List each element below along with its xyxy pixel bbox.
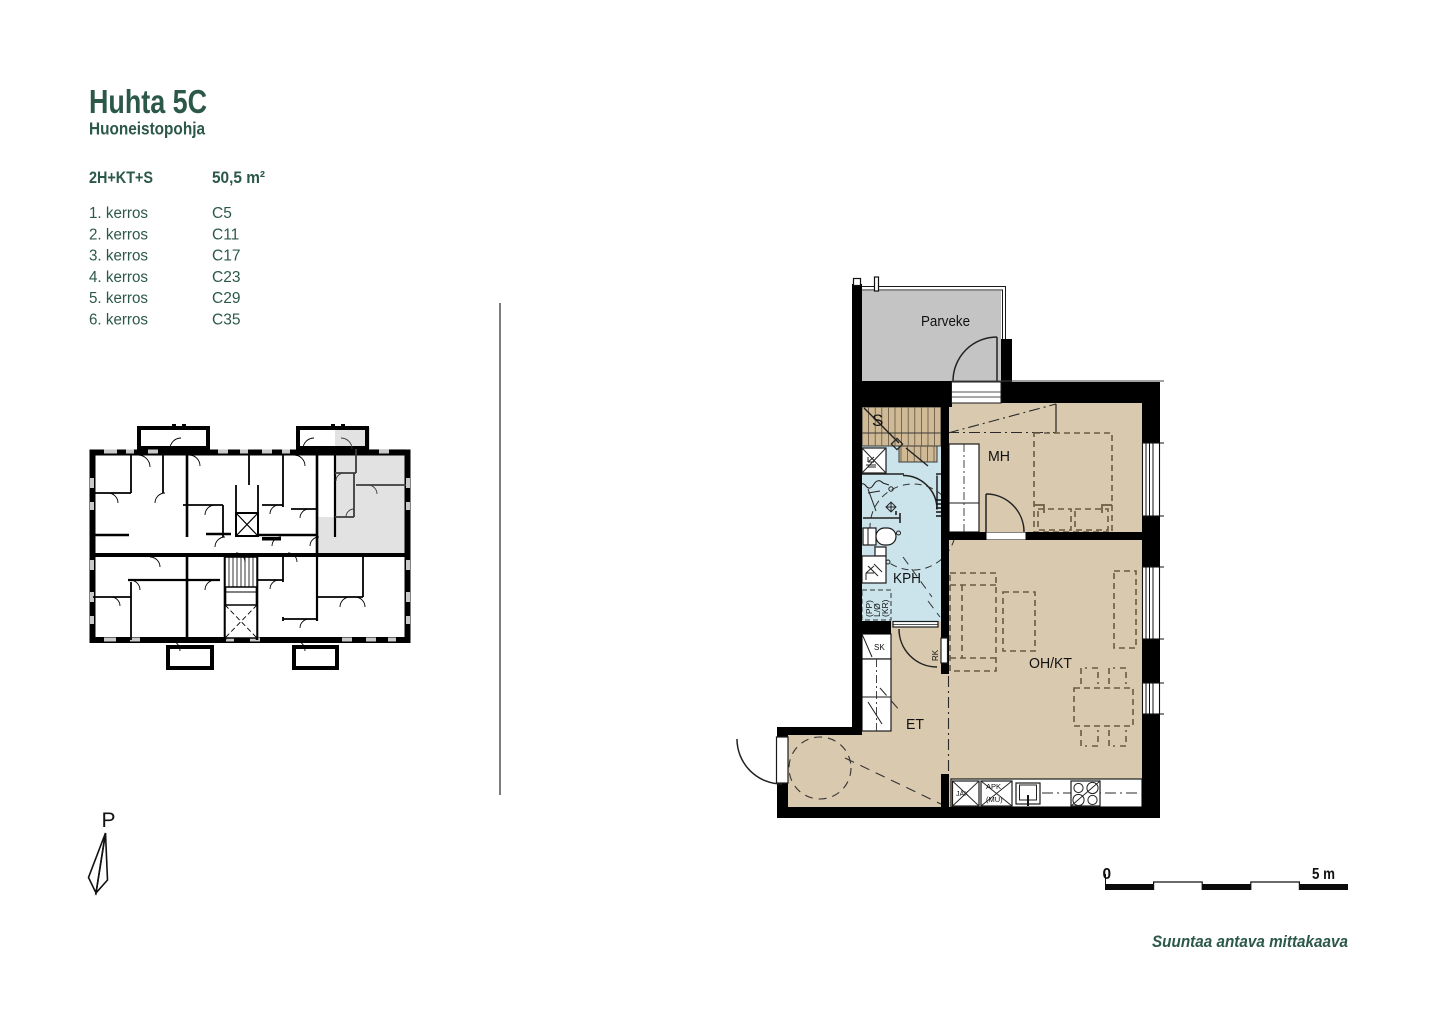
- svg-text:P: P: [102, 809, 116, 832]
- svg-text:C35: C35: [212, 312, 240, 329]
- svg-text:2. kerros: 2. kerros: [89, 226, 148, 243]
- svg-text:5. kerros: 5. kerros: [89, 290, 148, 307]
- svg-text:(KR): (KR): [880, 599, 890, 617]
- svg-text:C17: C17: [212, 248, 240, 265]
- svg-text:Parveke: Parveke: [921, 313, 970, 330]
- svg-text:Suuntaa antava mittakaava: Suuntaa antava mittakaava: [1152, 932, 1348, 951]
- svg-text:SK: SK: [874, 643, 885, 652]
- svg-text:Huhta 5C: Huhta 5C: [89, 83, 207, 120]
- svg-text:ET: ET: [906, 716, 924, 733]
- svg-text:50,5 m²: 50,5 m²: [212, 168, 265, 187]
- svg-text:APK: APK: [986, 782, 1001, 791]
- svg-text:(MU): (MU): [986, 795, 1003, 804]
- svg-text:MH: MH: [988, 448, 1010, 465]
- svg-text:C5: C5: [212, 205, 232, 222]
- svg-text:Huoneistopohja: Huoneistopohja: [89, 119, 205, 139]
- svg-text:5 m: 5 m: [1312, 866, 1335, 883]
- svg-text:3. kerros: 3. kerros: [89, 248, 148, 265]
- svg-text:6. kerros: 6. kerros: [89, 312, 148, 329]
- svg-text:0: 0: [1103, 866, 1112, 883]
- svg-text:C11: C11: [212, 226, 239, 243]
- svg-text:2H+KT+S: 2H+KT+S: [89, 168, 153, 187]
- svg-text:KPH: KPH: [893, 570, 921, 587]
- svg-text:JÄK: JÄK: [956, 790, 969, 798]
- svg-text:4. kerros: 4. kerros: [89, 269, 148, 286]
- svg-text:1. kerros: 1. kerros: [89, 205, 148, 222]
- svg-text:RK: RK: [931, 649, 940, 661]
- svg-text:C23: C23: [212, 269, 240, 286]
- svg-text:C29: C29: [212, 290, 240, 307]
- svg-text:OH/KT: OH/KT: [1029, 655, 1072, 672]
- svg-text:S: S: [872, 411, 883, 430]
